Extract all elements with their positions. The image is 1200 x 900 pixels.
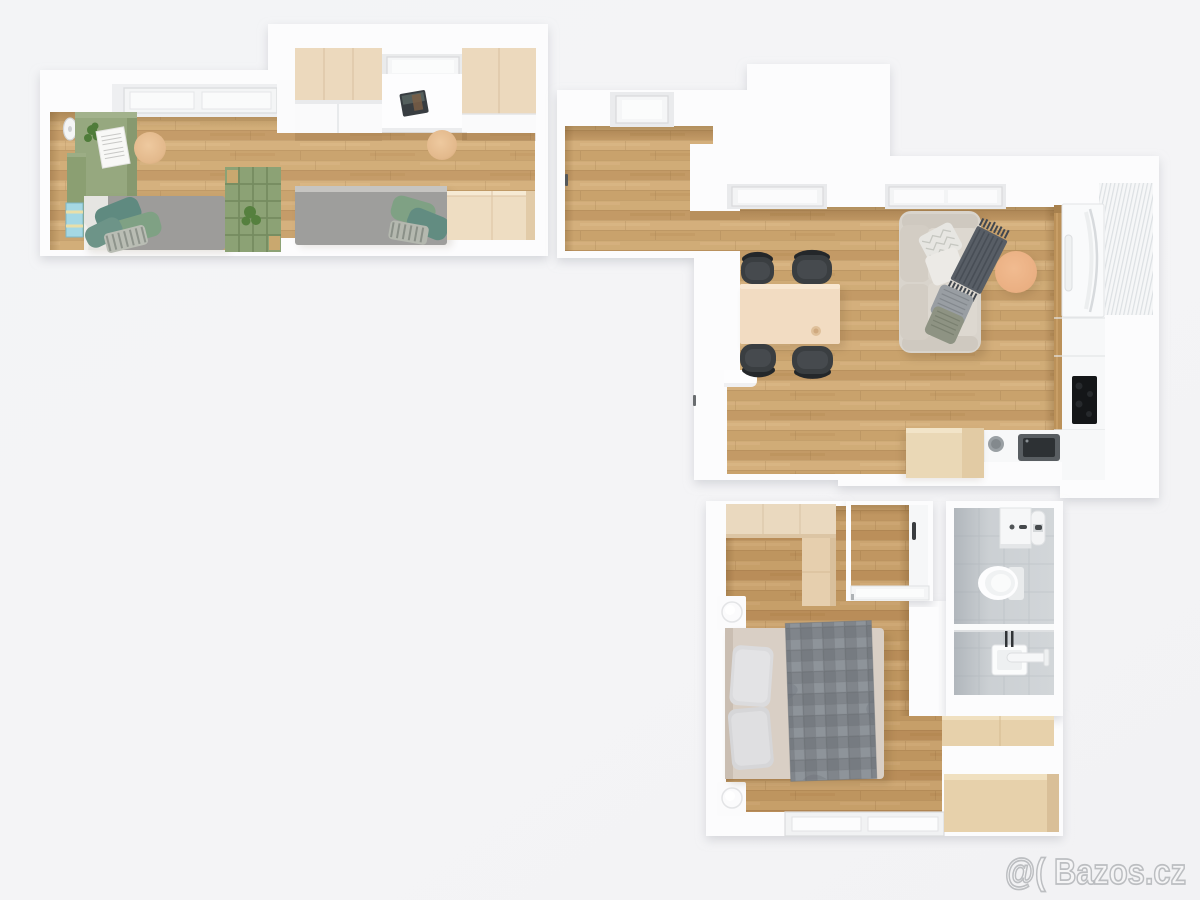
svg-text:@( Bazos.cz: @( Bazos.cz <box>1005 851 1186 892</box>
